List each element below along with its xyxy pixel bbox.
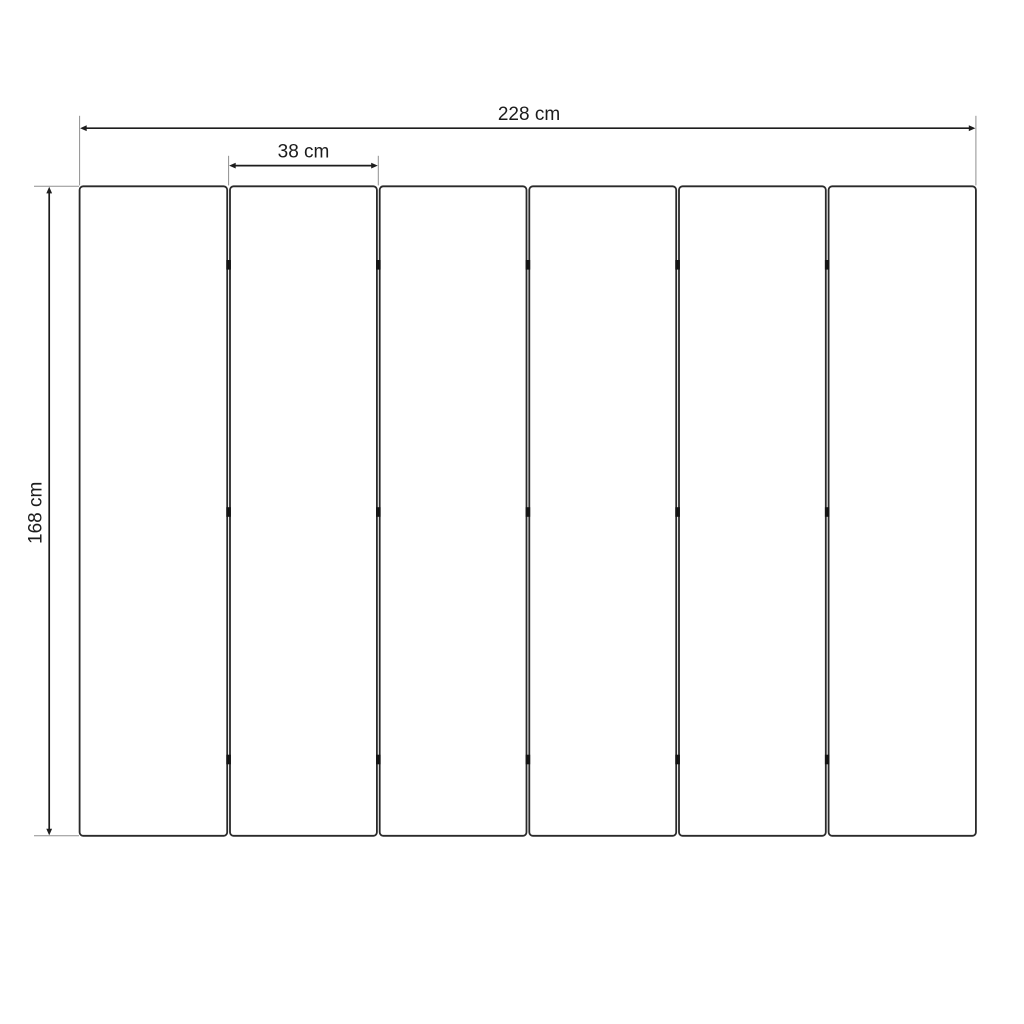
svg-text:38 cm: 38 cm [278, 141, 330, 162]
svg-text:168 cm: 168 cm [25, 482, 46, 544]
svg-text:228 cm: 228 cm [498, 104, 560, 125]
